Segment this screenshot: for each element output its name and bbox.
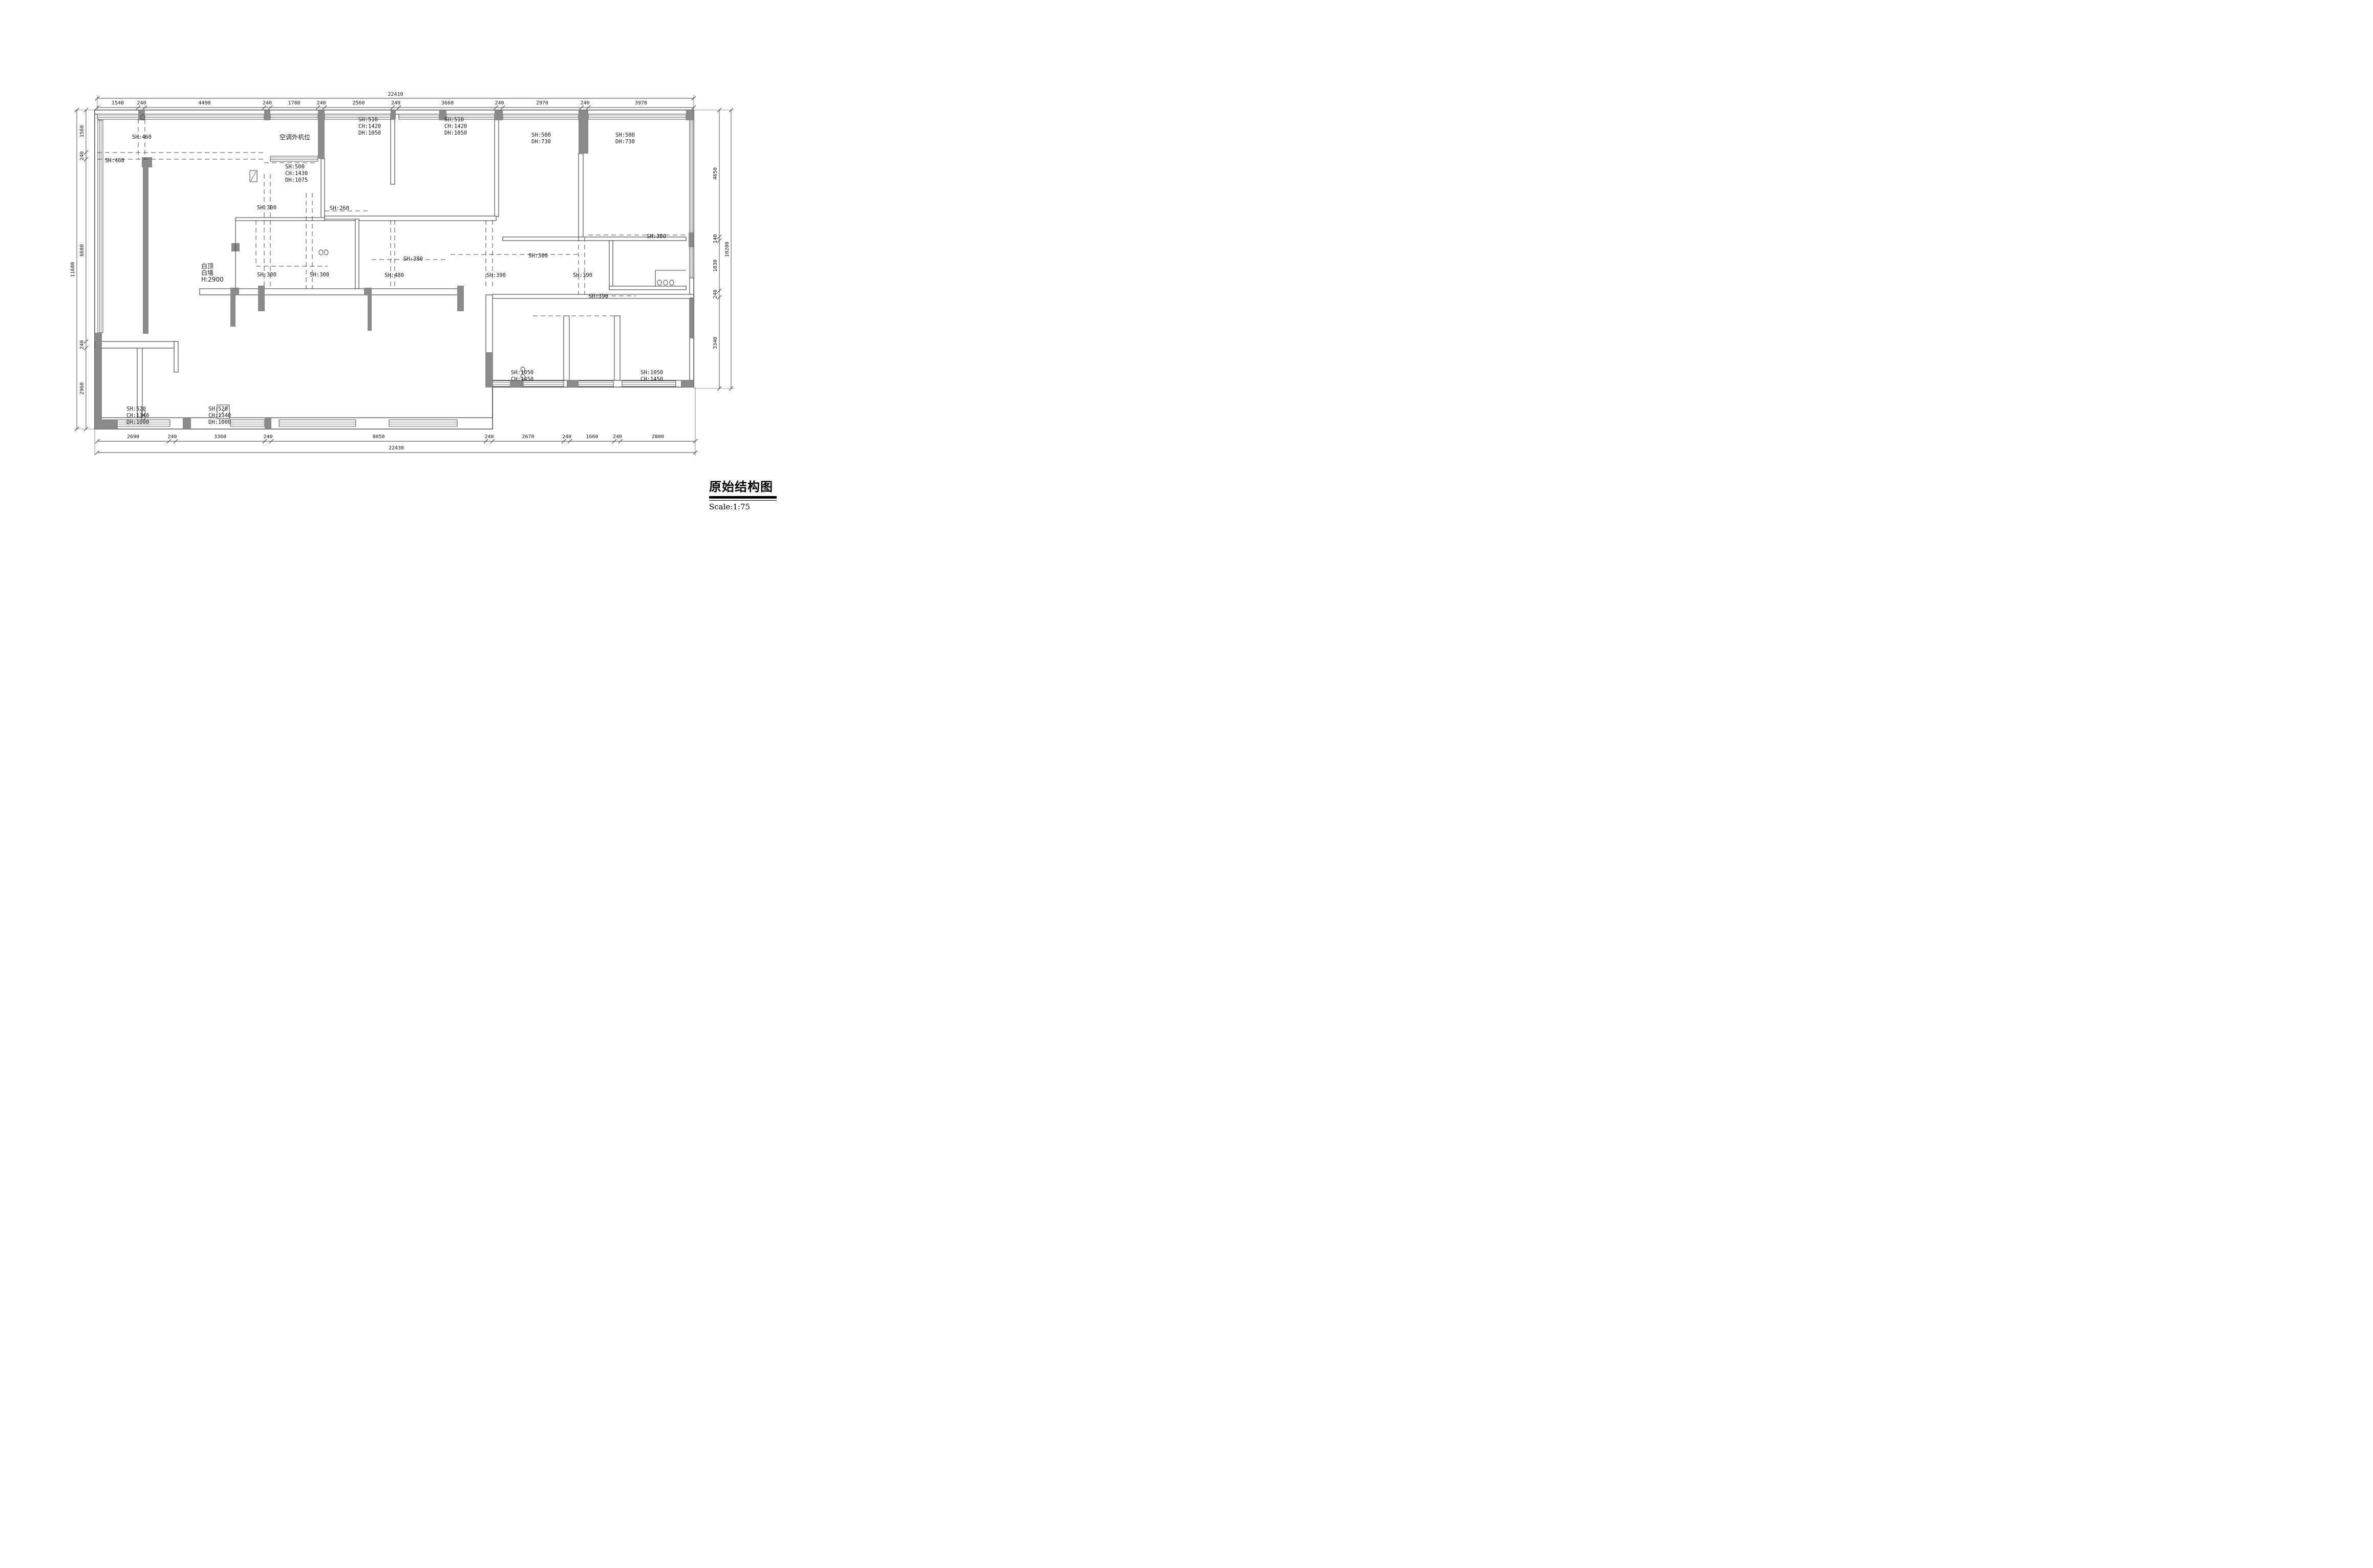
annotation-label: H:2900 <box>201 276 224 283</box>
drawing-sheet: SH:460SH:460空调外机位SH:510CH:1420DH:1050SH:… <box>0 0 791 523</box>
window <box>230 420 265 426</box>
annotation-label: SH:390 <box>589 293 608 299</box>
dimension-label: 240 <box>391 100 400 106</box>
annotation-label: SH:460 <box>105 158 124 164</box>
structural-column <box>681 380 694 387</box>
annotation-label: SH:500 <box>285 164 305 170</box>
wall <box>95 341 177 348</box>
title-block: 原始结构图 Scale:1:75 <box>709 477 777 511</box>
annotation-label: SH:380 <box>403 256 423 262</box>
annotation-label: DH:1050 <box>444 130 467 136</box>
annotation-label: 空调外机位 <box>280 133 310 141</box>
structural-column <box>457 286 464 311</box>
annotation-label: CH:1420 <box>444 123 467 130</box>
annotation-label: CH:1450 <box>640 376 663 382</box>
fixture-circle <box>319 250 323 255</box>
dimension-label: 240 <box>137 100 146 106</box>
annotation-label: 白顶 <box>201 262 213 270</box>
annotation-label: SH:520 <box>208 406 228 412</box>
annotation-label: SH:300 <box>257 205 276 211</box>
wall <box>236 218 325 221</box>
wall <box>614 316 620 380</box>
dimension-total-label: 11680 <box>70 262 76 277</box>
structural-column <box>265 418 271 429</box>
structural-column <box>258 286 265 311</box>
structural-column <box>579 110 588 154</box>
dimension-label: 6680 <box>79 244 85 256</box>
annotation-label: CH:1450 <box>511 376 533 382</box>
dimension-label: 1540 <box>112 100 124 106</box>
title-underline-thin <box>709 500 777 501</box>
dimension-label: 2800 <box>652 434 664 440</box>
structural-column <box>143 167 148 334</box>
wall <box>609 286 686 290</box>
annotation-label: SH:460 <box>132 134 152 140</box>
window <box>493 381 510 386</box>
annotation-label: SH:300 <box>528 253 548 259</box>
structural-column <box>142 157 152 167</box>
annotation-label: SH:480 <box>384 272 404 278</box>
dimension-label: 240 <box>79 151 85 160</box>
window <box>279 420 356 426</box>
dimension-total-label: 22430 <box>389 445 404 451</box>
annotation-label: DH:730 <box>615 139 635 145</box>
annotation-label: DH:1000 <box>208 419 231 425</box>
dimension-label: 3360 <box>214 434 226 440</box>
structural-column <box>391 110 396 119</box>
annotation-label: 白墙 <box>201 269 213 276</box>
annotation-label: CH:1340 <box>208 413 231 419</box>
dimension-label: 2670 <box>522 434 534 440</box>
fixture-circle <box>657 280 661 285</box>
structural-column <box>368 295 372 331</box>
structural-column <box>230 288 239 295</box>
annotation-label: DH:1075 <box>285 177 308 183</box>
wall <box>355 219 359 289</box>
fixture-circle <box>324 250 328 255</box>
dimension-label: 240 <box>713 289 718 298</box>
dimension-label: 240 <box>316 100 326 106</box>
dimension-label: 240 <box>263 434 272 440</box>
scale-label: Scale:1:75 <box>709 502 777 511</box>
dimension-label: 4650 <box>713 167 718 180</box>
window <box>98 120 103 333</box>
wall <box>579 154 583 237</box>
annotation-label: DH:1000 <box>126 419 149 425</box>
dimension-label: 240 <box>167 434 177 440</box>
dimension-label: 1780 <box>288 100 300 106</box>
dimension-label: 1830 <box>713 260 718 272</box>
dimension-label: 240 <box>79 340 85 349</box>
structural-column <box>567 380 579 387</box>
dimension-label: 2970 <box>536 100 548 106</box>
structural-column <box>183 418 191 429</box>
dimension-label: 240 <box>613 434 622 440</box>
annotation-label: SH:510 <box>444 117 464 123</box>
window <box>690 247 694 278</box>
annotation-label: CH:1430 <box>285 170 308 177</box>
wall <box>321 159 325 219</box>
annotation-label: SH:300 <box>257 272 276 278</box>
dimension-label: 8050 <box>372 434 384 440</box>
structural-column <box>95 333 102 429</box>
dimension-total-label: 10200 <box>724 242 730 257</box>
title-underline <box>709 496 777 499</box>
dimension-label: 2690 <box>127 434 139 440</box>
window <box>270 156 318 161</box>
annotation-label: DH:1050 <box>358 130 381 136</box>
dimension-label: 3970 <box>635 100 647 106</box>
dimension-label: 1560 <box>79 125 85 137</box>
dimension-label: 240 <box>495 100 504 106</box>
dimension-label: 140 <box>713 234 718 243</box>
structural-column <box>690 297 694 338</box>
window <box>97 114 264 119</box>
dimension-label: 240 <box>562 434 571 440</box>
structural-column <box>364 288 372 295</box>
window <box>690 115 694 233</box>
annotation-label: SH:500 <box>615 132 635 138</box>
wall <box>391 119 395 184</box>
drawing-title: 原始结构图 <box>709 477 777 495</box>
structural-column <box>686 110 694 120</box>
structural-column <box>264 110 270 120</box>
dimension-label: 240 <box>263 100 272 106</box>
window <box>325 114 391 119</box>
dimension-label: 2560 <box>352 100 365 106</box>
dimension-label: 1660 <box>586 434 598 440</box>
structural-column <box>486 352 493 387</box>
annotation-label: SH:300 <box>647 233 666 240</box>
wall <box>609 241 613 290</box>
fixture-circle <box>670 280 674 285</box>
dimension-label: 4490 <box>198 100 210 106</box>
annotation-label: SH:510 <box>358 117 378 123</box>
window <box>399 114 439 119</box>
floor-plan-canvas: SH:460SH:460空调外机位SH:510CH:1420DH:1050SH:… <box>0 0 791 523</box>
wall <box>325 216 496 221</box>
wall <box>200 289 463 295</box>
structural-column <box>230 295 236 327</box>
structural-column <box>689 233 694 247</box>
annotation-label: DH:730 <box>531 139 551 145</box>
fixture-circle <box>664 280 668 285</box>
wall <box>495 119 499 217</box>
annotation-label: SH:300 <box>310 272 329 278</box>
annotation-label: SH:260 <box>330 205 349 211</box>
annotation-label: SH:390 <box>486 272 506 278</box>
annotation-label: SH:500 <box>531 132 551 138</box>
dimension-label: 240 <box>580 100 589 106</box>
window <box>588 114 686 119</box>
annotation-label: SH:520 <box>126 406 146 412</box>
dimension-label: 3660 <box>441 100 454 106</box>
structural-column <box>95 420 118 429</box>
annotation-label: SH:390 <box>573 272 592 278</box>
annotation-label: SH:1050 <box>640 370 663 376</box>
annotation-label: SH:1050 <box>511 370 533 376</box>
dimension-label: 240 <box>484 434 494 440</box>
window <box>389 420 457 426</box>
dimension-label: 3340 <box>713 337 718 349</box>
window <box>503 114 579 119</box>
dimension-total-label: 22410 <box>388 92 403 97</box>
wall <box>174 341 178 372</box>
structural-column <box>495 110 503 120</box>
annotation-label: CH:1420 <box>358 123 381 130</box>
structural-column <box>318 110 325 159</box>
dimension-label: 2960 <box>79 382 85 395</box>
wall <box>564 316 569 380</box>
window <box>270 114 318 119</box>
annotation-label: CH:1340 <box>126 413 149 419</box>
